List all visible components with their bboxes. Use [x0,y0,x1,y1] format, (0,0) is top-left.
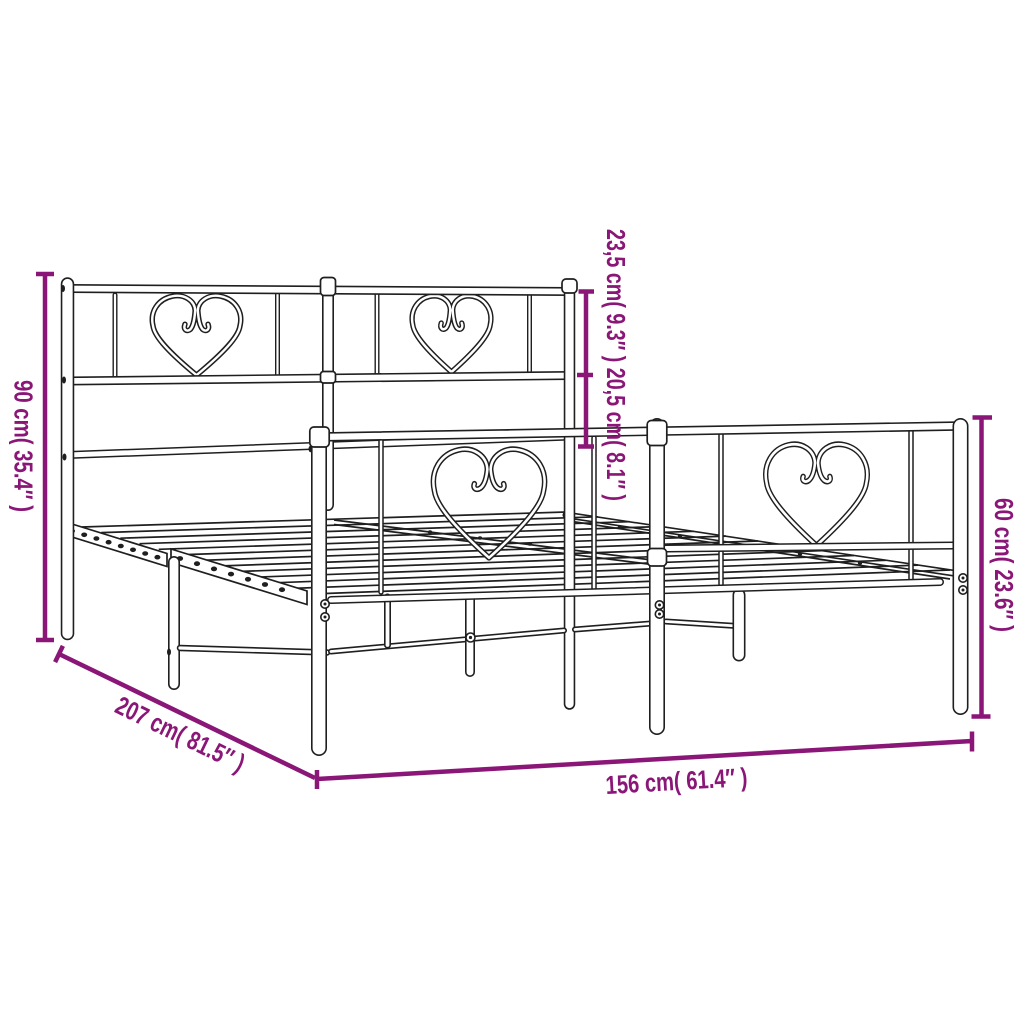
svg-text:23,5 cm( 9.3″ ) 20,5 cm( 8.1″: 23,5 cm( 9.3″ ) 20,5 cm( 8.1″ ) [601,229,631,501]
svg-text:60 cm( 23.6″ ): 60 cm( 23.6″ ) [989,498,1019,632]
svg-text:90 cm( 35.4″ ): 90 cm( 35.4″ ) [9,380,39,512]
